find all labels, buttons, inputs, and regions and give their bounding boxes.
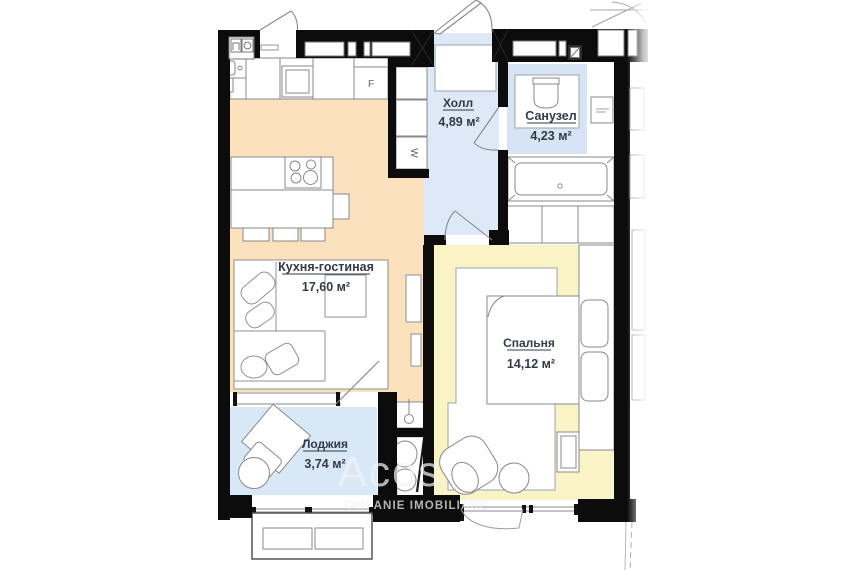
svg-text:17,60 м²: 17,60 м² — [302, 280, 350, 294]
svg-text:14,12 м²: 14,12 м² — [507, 357, 555, 371]
svg-text:Холл: Холл — [443, 96, 473, 110]
svg-text:W: W — [408, 148, 419, 158]
svg-text:Кухня-гостиная: Кухня-гостиная — [278, 260, 374, 274]
svg-text:4,89 м²: 4,89 м² — [438, 115, 479, 129]
svg-text:F: F — [368, 79, 374, 90]
svg-text:Спальня: Спальня — [503, 336, 555, 350]
svg-text:Acos: Acos — [338, 448, 442, 496]
svg-text:OMPANIE IMOBILIARE: OMPANIE IMOBILIARE — [345, 500, 489, 512]
